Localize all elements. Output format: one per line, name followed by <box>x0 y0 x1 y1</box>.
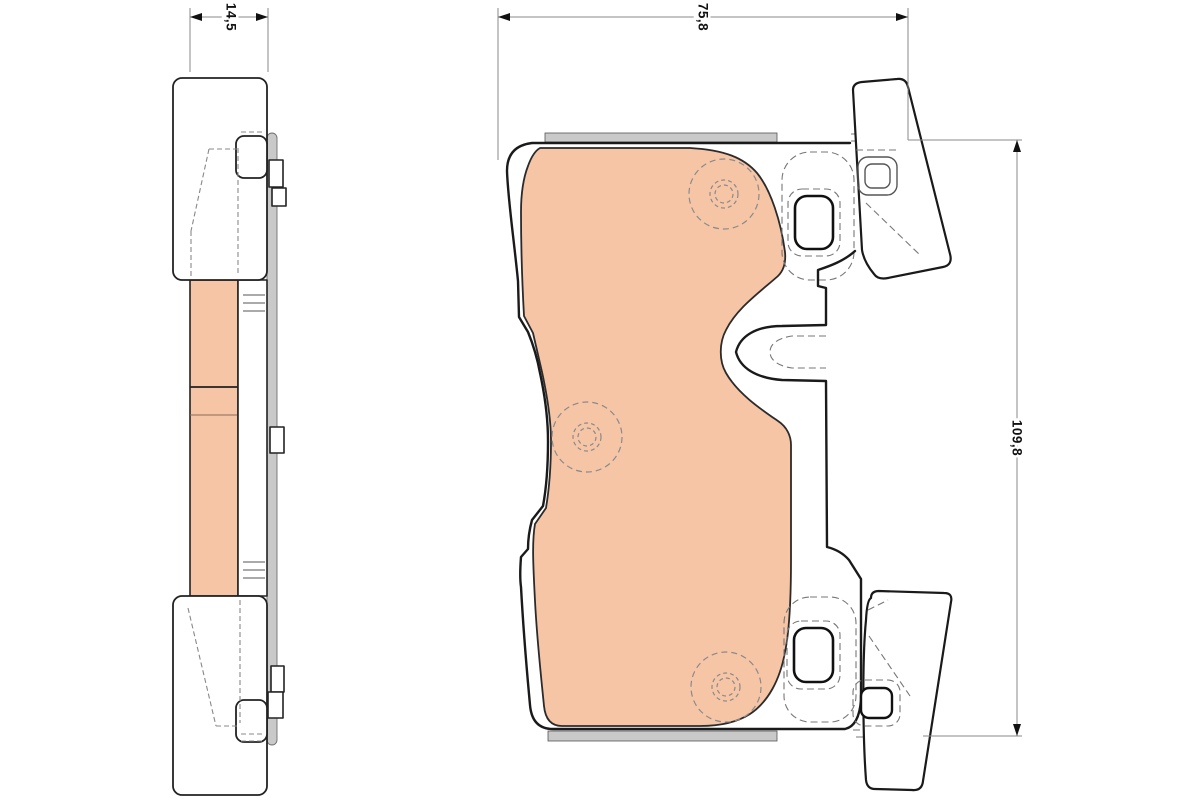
arrowhead-icon <box>190 13 202 21</box>
dim-thickness: 14,5 <box>190 3 268 72</box>
arrowhead-icon <box>1013 140 1021 152</box>
dim-thickness-label: 14,5 <box>224 3 239 31</box>
hole-top <box>795 196 833 249</box>
tab-icon <box>268 692 283 718</box>
brake-pad-drawing: 14,5 <box>0 0 1200 800</box>
retainer-ear-bottom <box>853 591 951 790</box>
retainer-ear-top <box>853 79 951 279</box>
arrowhead-icon <box>896 13 908 21</box>
backing-plate-side <box>238 280 267 596</box>
arrowhead-icon <box>498 13 510 21</box>
tab-icon <box>269 160 283 187</box>
drawing-canvas: 14,5 <box>0 0 1200 800</box>
spring-hook-top <box>236 136 267 178</box>
front-view: 75,8 109,8 <box>498 3 1025 790</box>
tab-icon <box>271 666 284 692</box>
ear-bottom-square <box>861 688 892 718</box>
shim-edge-bottom <box>548 731 777 741</box>
dim-height-label: 109,8 <box>1010 420 1025 456</box>
friction-material <box>521 148 791 726</box>
hole-bottom <box>794 628 833 682</box>
tab-icon <box>270 427 284 453</box>
arrowhead-icon <box>256 13 268 21</box>
tab-icon <box>272 188 286 206</box>
side-view: 14,5 <box>173 3 286 795</box>
spring-hook-bottom <box>236 700 267 742</box>
shim-edge-top <box>545 133 777 142</box>
top-abutment-block <box>173 78 267 280</box>
friction-material-side <box>190 280 238 596</box>
arrowhead-icon <box>1013 724 1021 736</box>
dim-width-label: 75,8 <box>696 3 711 31</box>
bottom-abutment-block <box>173 596 267 795</box>
